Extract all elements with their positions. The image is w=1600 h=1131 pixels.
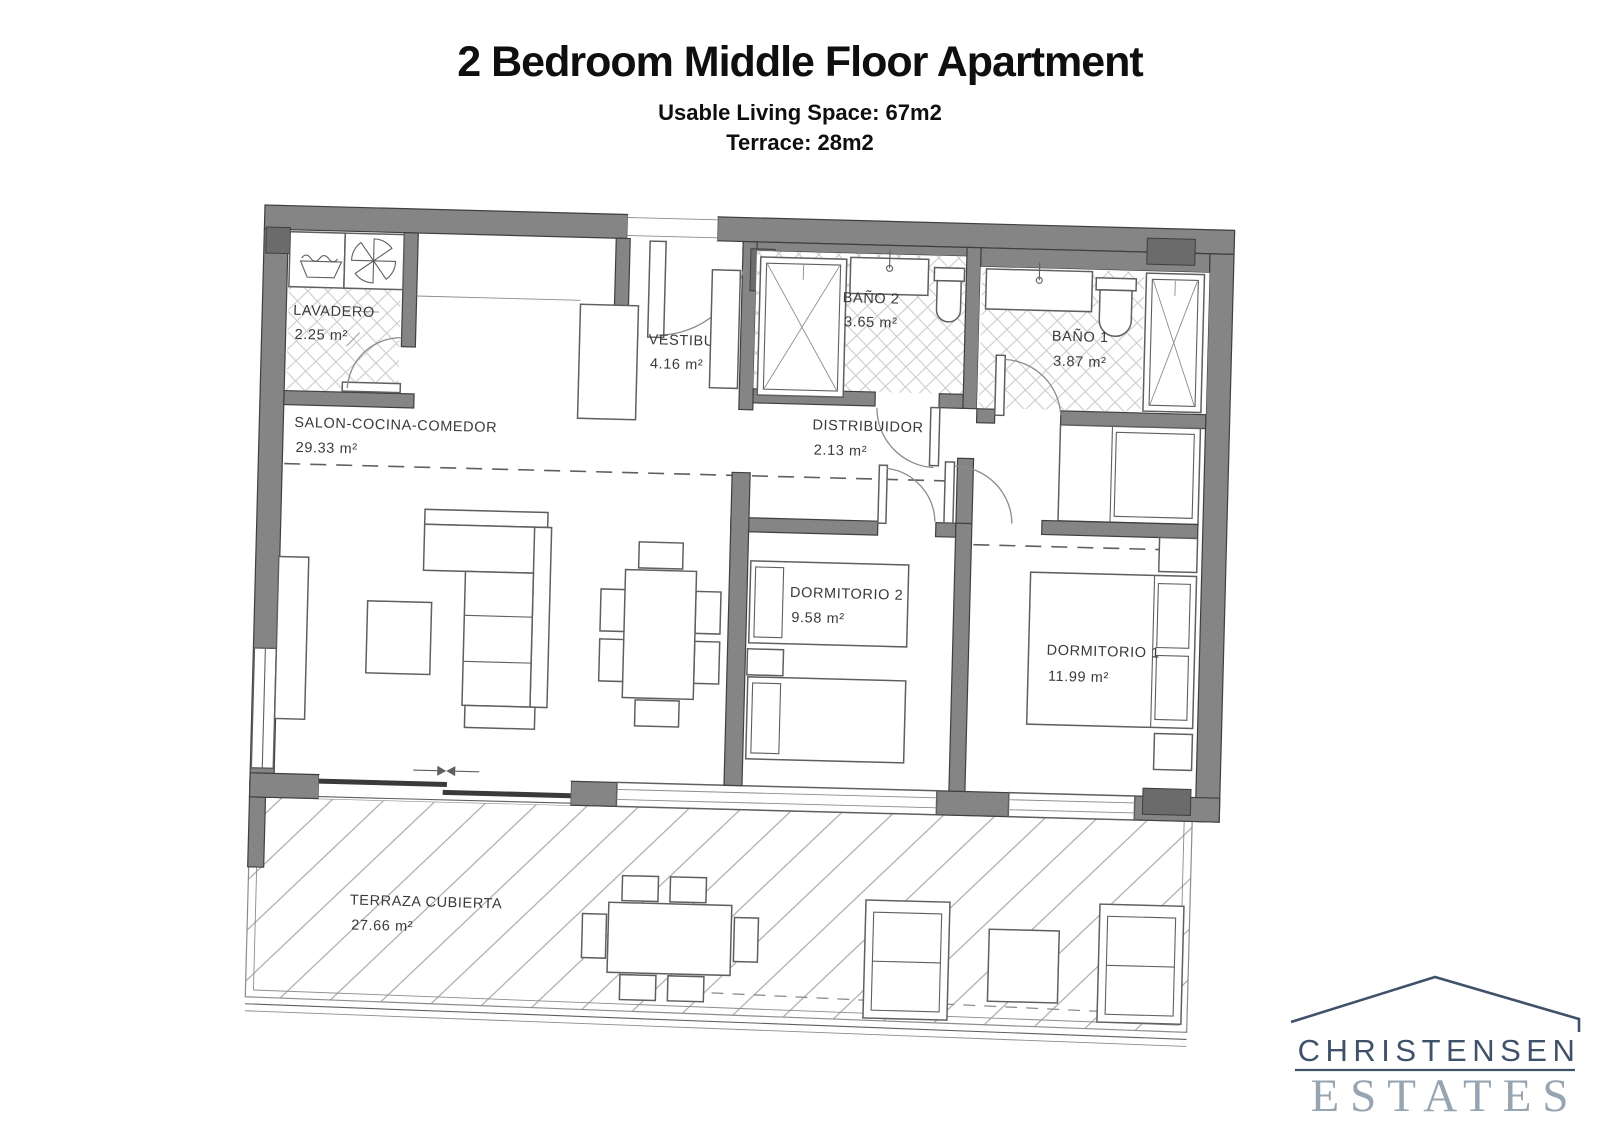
room-dormitorio1: DORMITORIO 1 11.99 m² bbox=[968, 533, 1198, 771]
bed-icon bbox=[749, 561, 909, 647]
lounge-chair-icon bbox=[1097, 904, 1184, 1024]
bed-icon bbox=[746, 677, 906, 763]
roof-icon bbox=[1291, 977, 1579, 1032]
room-area-dormitorio1: 11.99 m² bbox=[1048, 669, 1109, 687]
sideboard bbox=[275, 556, 309, 719]
room-area-terraza: 27.66 m² bbox=[351, 918, 413, 936]
room-bano2: BAÑO 2 3.65 m² bbox=[751, 247, 967, 468]
room-label-dormitorio1: DORMITORIO 1 bbox=[1046, 643, 1160, 662]
room-label-salon: SALON-COCINA-COMEDOR bbox=[294, 415, 497, 436]
room-area-lavadero: 2.25 m² bbox=[294, 327, 348, 344]
entrance-opening bbox=[627, 215, 718, 241]
room-label-bano2: BAÑO 2 bbox=[843, 289, 900, 307]
shower-icon bbox=[757, 257, 847, 397]
sofa-icon bbox=[419, 509, 552, 729]
room-lavadero: LAVADERO 2.25 m² bbox=[284, 230, 419, 408]
fan-icon bbox=[351, 238, 396, 283]
lounge-chair-icon bbox=[863, 900, 950, 1020]
window bbox=[251, 648, 276, 769]
room-area-salon: 29.33 m² bbox=[295, 440, 357, 458]
door-swing bbox=[886, 468, 936, 521]
logo-name: CHRISTENSEN bbox=[1298, 1033, 1581, 1068]
room-bano1: BAÑO 1 3.87 m² bbox=[977, 261, 1210, 429]
floor-plan: TERRAZA CUBIERTA 27.66 m² bbox=[0, 0, 1600, 1131]
room-label-distribuidor: DISTRIBUIDOR bbox=[812, 417, 924, 436]
living-space-subtitle: Usable Living Space: 67m2 bbox=[0, 98, 1600, 128]
room-area-dormitorio2: 9.58 m² bbox=[791, 610, 845, 627]
room-label-dormitorio2: DORMITORIO 2 bbox=[790, 585, 904, 604]
shower-icon bbox=[1143, 273, 1205, 412]
door-leaf bbox=[944, 462, 955, 523]
room-label-lavadero: LAVADERO bbox=[293, 303, 375, 321]
structural-column bbox=[1147, 238, 1196, 265]
nightstand bbox=[1154, 733, 1193, 770]
nightstand bbox=[747, 649, 784, 676]
open-plan-boundary bbox=[284, 464, 951, 481]
toilet-icon bbox=[933, 268, 964, 323]
door-leaf bbox=[648, 241, 667, 337]
room-label-bano1: BAÑO 1 bbox=[1052, 328, 1109, 346]
cabinet bbox=[709, 270, 740, 389]
wardrobe-icon bbox=[1042, 424, 1201, 538]
terrace-subtitle: Terrace: 28m2 bbox=[0, 128, 1600, 158]
room-dormitorio2: DORMITORIO 2 9.58 m² bbox=[724, 452, 1014, 792]
door-swing bbox=[875, 408, 934, 467]
structural-column bbox=[1142, 788, 1191, 815]
room-area-bano1: 3.87 m² bbox=[1053, 354, 1107, 371]
room-area-vestibulo: 4.16 m² bbox=[650, 356, 704, 373]
kitchen-unit bbox=[578, 304, 639, 419]
door-leaf bbox=[929, 408, 940, 466]
structural-column bbox=[266, 227, 291, 254]
terrace-side-wall bbox=[248, 797, 266, 867]
page-title: 2 Bedroom Middle Floor Apartment bbox=[0, 36, 1600, 88]
dining-table-icon bbox=[598, 541, 723, 728]
nightstand bbox=[1159, 538, 1198, 573]
side-table-icon bbox=[987, 929, 1059, 1003]
logo-subname: ESTATES bbox=[1310, 1070, 1579, 1116]
sliding-door-arrows bbox=[413, 765, 479, 777]
coffee-table-icon bbox=[366, 601, 432, 675]
room-area-bano2: 3.65 m² bbox=[844, 314, 898, 331]
door-leaf bbox=[995, 355, 1006, 415]
door-leaf bbox=[878, 465, 888, 523]
room-area-distribuidor: 2.13 m² bbox=[814, 442, 868, 459]
window bbox=[1008, 793, 1135, 820]
agency-logo: CHRISTENSEN ESTATES bbox=[1283, 966, 1595, 1116]
toilet-icon bbox=[1095, 278, 1137, 337]
door-leaf bbox=[342, 382, 400, 393]
title-block: 2 Bedroom Middle Floor Apartment Usable … bbox=[0, 36, 1600, 158]
terrace: TERRAZA CUBIERTA 27.66 m² bbox=[244, 797, 1193, 1047]
